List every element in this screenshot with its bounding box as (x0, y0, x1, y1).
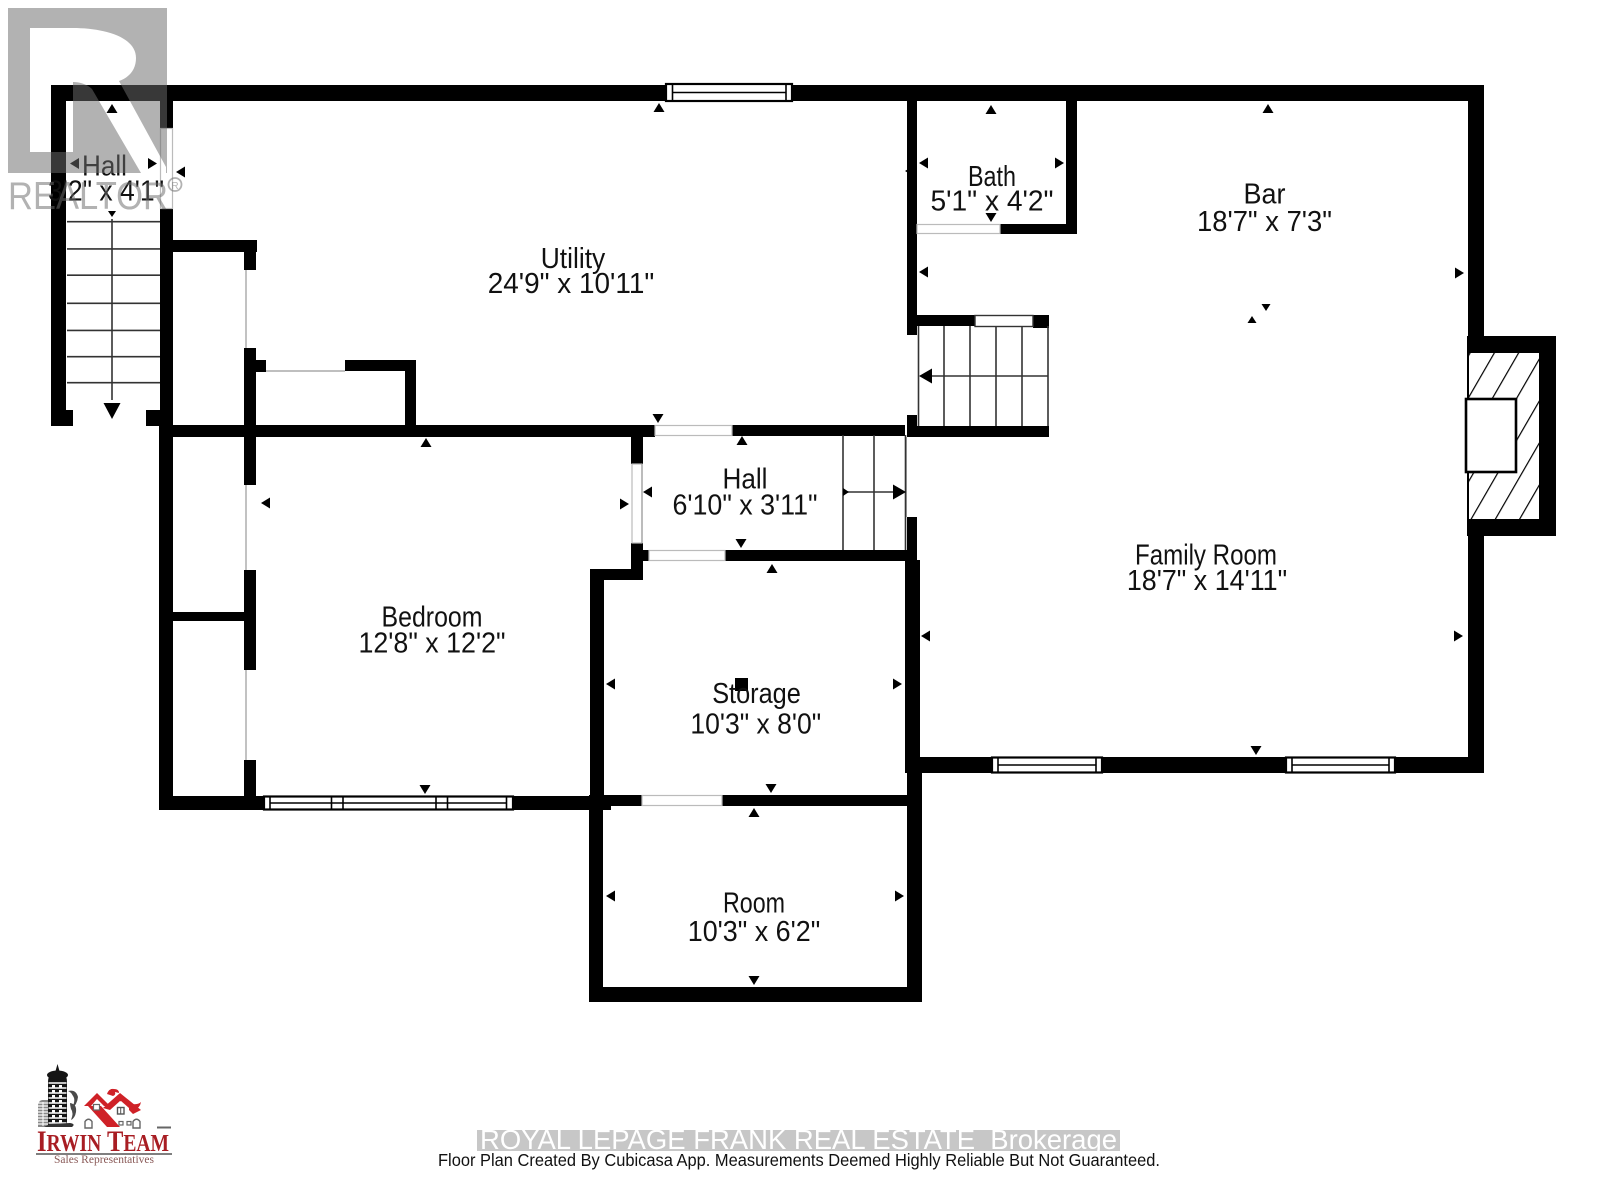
svg-text:REALTOR: REALTOR (8, 175, 168, 218)
svg-text:Sales Representatives: Sales Representatives (54, 1154, 154, 1166)
svg-text:Floor Plan Created By Cubicasa: Floor Plan Created By Cubicasa App. Meas… (438, 1150, 1160, 1170)
svg-text:18'7" x 7'3": 18'7" x 7'3" (1197, 206, 1332, 238)
svg-text:R: R (171, 181, 178, 192)
svg-text:Storage: Storage (712, 678, 801, 710)
svg-text:10'3" x 8'0": 10'3" x 8'0" (690, 708, 821, 740)
svg-text:Room: Room (723, 888, 785, 920)
svg-text:12'8" x 12'2": 12'8" x 12'2" (359, 628, 506, 660)
svg-text:24'9" x 10'11": 24'9" x 10'11" (488, 268, 655, 300)
svg-text:10'3" x 6'2": 10'3" x 6'2" (688, 916, 821, 948)
svg-text:6'10" x 3'11": 6'10" x 3'11" (673, 490, 818, 522)
svg-text:5'1" x 4'2": 5'1" x 4'2" (931, 186, 1054, 218)
svg-text:18'7" x 14'11": 18'7" x 14'11" (1127, 565, 1287, 597)
